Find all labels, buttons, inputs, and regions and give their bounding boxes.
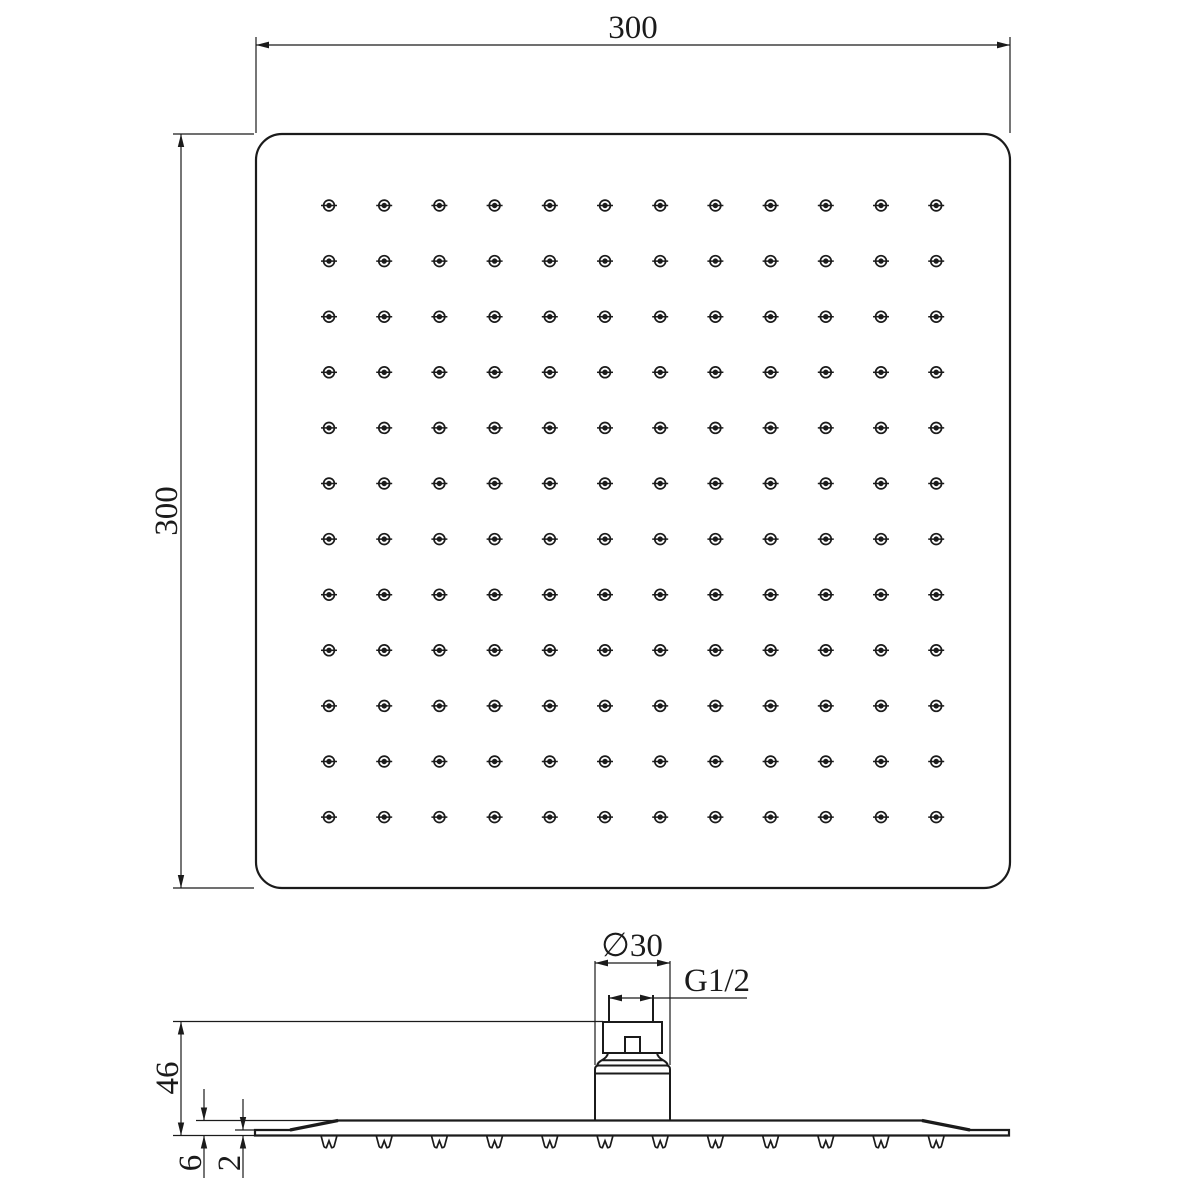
nozzle-hole (873, 256, 889, 267)
nozzle-center-dot (878, 425, 883, 430)
nozzle-hole (928, 701, 944, 712)
nozzle-hole (707, 256, 723, 267)
nozzle-center-dot (547, 258, 552, 263)
nozzle-hole (818, 645, 834, 656)
nozzle-center-dot (602, 203, 607, 208)
nozzle-hole (707, 812, 723, 823)
plate-thickness-label: 6 (173, 1155, 209, 1172)
nozzle-center-dot (878, 258, 883, 263)
nozzle-center-dot (492, 370, 497, 375)
nozzle-center-dot (437, 481, 442, 486)
nozzle-hole (487, 534, 503, 545)
nozzle-center-dot (547, 481, 552, 486)
nozzle-center-dot (492, 314, 497, 319)
arrowhead (178, 875, 184, 888)
nozzle-center-dot (713, 536, 718, 541)
nozzle-hole (487, 589, 503, 600)
nozzle-center-dot (713, 258, 718, 263)
nozzle-center-dot (878, 703, 883, 708)
nozzle-center-dot (878, 648, 883, 653)
nozzle-center-dot (658, 814, 663, 819)
nozzle-hole (707, 311, 723, 322)
nozzle-hole (321, 423, 337, 434)
nozzle-center-dot (658, 759, 663, 764)
flange-collar (595, 1066, 670, 1074)
nozzle-hole (707, 701, 723, 712)
nozzle-center-dot (934, 203, 939, 208)
nozzle-hole (707, 478, 723, 489)
plate-profile (255, 1121, 1009, 1136)
nozzle-center-dot (713, 481, 718, 486)
nozzle-center-dot (878, 314, 883, 319)
height-label: 46 (150, 1062, 186, 1095)
nozzle-hole (763, 478, 779, 489)
nozzle-hole (928, 200, 944, 211)
arrowhead (201, 1136, 207, 1149)
nozzle-tip (707, 1136, 723, 1148)
nozzle-hole (763, 812, 779, 823)
nozzle-center-dot (382, 814, 387, 819)
nozzle-hole (321, 812, 337, 823)
nozzle-center-dot (437, 814, 442, 819)
nozzle-center-dot (326, 703, 331, 708)
nozzle-center-dot (823, 703, 828, 708)
nozzle-center-dot (658, 425, 663, 430)
nozzle-hole (707, 367, 723, 378)
nozzle-center-dot (602, 258, 607, 263)
nozzle-hole (873, 200, 889, 211)
thread-dimension: G1/2 (609, 963, 750, 1001)
nozzle-center-dot (602, 370, 607, 375)
nozzle-tip (818, 1136, 834, 1148)
nozzle-center-dot (492, 759, 497, 764)
nozzle-hole (818, 534, 834, 545)
nozzle-hole (487, 311, 503, 322)
nozzle-tip (597, 1136, 613, 1148)
nozzle-hole (652, 367, 668, 378)
nozzle-hole (487, 200, 503, 211)
nozzle-center-dot (934, 481, 939, 486)
nozzle-center-dot (547, 203, 552, 208)
shower-face-outline (256, 134, 1010, 888)
nozzle-tip (376, 1136, 392, 1148)
nozzle-center-dot (492, 258, 497, 263)
nozzle-center-dot (658, 203, 663, 208)
nozzle-hole (652, 256, 668, 267)
nozzle-hole (873, 534, 889, 545)
trumpet-neck (597, 1053, 668, 1066)
nozzle-tip (542, 1136, 558, 1148)
nozzle-center-dot (658, 592, 663, 597)
nozzle-hole (487, 756, 503, 767)
nozzle-hole (376, 645, 392, 656)
arrowhead (178, 1022, 184, 1035)
nozzle-hole (763, 256, 779, 267)
nozzle-hole (818, 589, 834, 600)
nozzle-hole (542, 256, 558, 267)
nozzle-center-dot (713, 703, 718, 708)
nozzle-hole (818, 256, 834, 267)
nozzle-center-dot (658, 481, 663, 486)
nozzle-hole (928, 423, 944, 434)
nozzle-center-dot (823, 425, 828, 430)
nozzle-center-dot (768, 314, 773, 319)
nozzle-center-dot (326, 536, 331, 541)
arrowhead (256, 42, 269, 49)
nozzle-center-dot (437, 370, 442, 375)
nozzle-hole (431, 200, 447, 211)
nozzle-hole (597, 478, 613, 489)
nozzle-hole (763, 701, 779, 712)
nozzle-hole (376, 756, 392, 767)
nozzle-center-dot (492, 814, 497, 819)
nozzle-tip (487, 1136, 503, 1148)
nozzle-center-dot (768, 592, 773, 597)
edge-thickness-dimension: 2 (212, 1099, 292, 1178)
nozzle-hole (542, 478, 558, 489)
nozzle-center-dot (437, 425, 442, 430)
nozzle-center-dot (934, 648, 939, 653)
nozzle-center-dot (713, 203, 718, 208)
nozzle-hole (321, 589, 337, 600)
nozzle-hole (763, 200, 779, 211)
nozzle-hole (376, 812, 392, 823)
nozzle-hole (376, 701, 392, 712)
nozzle-center-dot (437, 759, 442, 764)
nozzle-hole (321, 756, 337, 767)
nozzle-hole (597, 423, 613, 434)
nozzle-hole (597, 256, 613, 267)
nozzle-center-dot (878, 481, 883, 486)
arrowhead (997, 42, 1010, 49)
nozzle-grid (321, 200, 944, 822)
nozzle-center-dot (713, 814, 718, 819)
nozzle-center-dot (602, 481, 607, 486)
nozzle-center-dot (878, 592, 883, 597)
nozzle-center-dot (602, 314, 607, 319)
nozzle-hole (542, 812, 558, 823)
nozzle-hole (597, 701, 613, 712)
nozzle-center-dot (934, 314, 939, 319)
nozzle-center-dot (768, 648, 773, 653)
nozzle-hole (928, 756, 944, 767)
nozzle-hole (376, 311, 392, 322)
side-nozzle-tips (321, 1136, 944, 1148)
nozzle-center-dot (823, 814, 828, 819)
nozzle-center-dot (547, 592, 552, 597)
nozzle-center-dot (768, 703, 773, 708)
nozzle-center-dot (547, 703, 552, 708)
nozzle-center-dot (382, 370, 387, 375)
nozzle-hole (818, 311, 834, 322)
nozzle-hole (487, 645, 503, 656)
nozzle-center-dot (437, 258, 442, 263)
nozzle-hole (818, 367, 834, 378)
nozzle-hole (376, 367, 392, 378)
nozzle-tip (652, 1136, 668, 1148)
nozzle-hole (873, 478, 889, 489)
nozzle-center-dot (713, 370, 718, 375)
nozzle-center-dot (602, 703, 607, 708)
nozzle-hole (763, 367, 779, 378)
nozzle-center-dot (382, 258, 387, 263)
nozzle-hole (376, 534, 392, 545)
height-dimension: 46 (150, 1022, 603, 1136)
nozzle-center-dot (878, 203, 883, 208)
arrowhead (178, 134, 184, 147)
nozzle-hole (652, 756, 668, 767)
arrowhead (201, 1108, 207, 1121)
nozzle-hole (763, 589, 779, 600)
arrowhead (240, 1117, 246, 1130)
nozzle-hole (928, 367, 944, 378)
nozzle-center-dot (713, 314, 718, 319)
nozzle-center-dot (768, 759, 773, 764)
drawing-canvas: 300 300 (0, 0, 1200, 1200)
nozzle-center-dot (437, 592, 442, 597)
nozzle-center-dot (382, 592, 387, 597)
nozzle-hole (652, 589, 668, 600)
nozzle-hole (818, 756, 834, 767)
nozzle-center-dot (823, 370, 828, 375)
nozzle-hole (597, 534, 613, 545)
nozzle-hole (431, 256, 447, 267)
nozzle-hole (652, 311, 668, 322)
nozzle-center-dot (713, 592, 718, 597)
nozzle-center-dot (878, 759, 883, 764)
nozzle-center-dot (382, 481, 387, 486)
nozzle-center-dot (934, 592, 939, 597)
nozzle-hole (431, 756, 447, 767)
nozzle-hole (818, 423, 834, 434)
nozzle-hole (818, 812, 834, 823)
nozzle-tip (928, 1136, 944, 1148)
nozzle-hole (873, 311, 889, 322)
nozzle-center-dot (658, 536, 663, 541)
nozzle-center-dot (437, 203, 442, 208)
nozzle-hole (376, 589, 392, 600)
nozzle-hole (542, 645, 558, 656)
nozzle-hole (707, 756, 723, 767)
nozzle-center-dot (382, 536, 387, 541)
nozzle-center-dot (547, 648, 552, 653)
nozzle-center-dot (602, 592, 607, 597)
nozzle-center-dot (492, 425, 497, 430)
nozzle-hole (321, 367, 337, 378)
nozzle-hole (707, 645, 723, 656)
nozzle-center-dot (713, 648, 718, 653)
nozzle-tip (431, 1136, 447, 1148)
nozzle-hole (431, 534, 447, 545)
nozzle-center-dot (437, 648, 442, 653)
nozzle-center-dot (658, 314, 663, 319)
arrowhead (240, 1136, 246, 1149)
nozzle-hole (431, 645, 447, 656)
nozzle-hole (763, 423, 779, 434)
nozzle-center-dot (768, 370, 773, 375)
nozzle-center-dot (823, 592, 828, 597)
nozzle-hole (321, 256, 337, 267)
nozzle-center-dot (382, 759, 387, 764)
nozzle-hole (431, 701, 447, 712)
nozzle-center-dot (768, 814, 773, 819)
nozzle-hole (431, 589, 447, 600)
nozzle-hole (431, 478, 447, 489)
nozzle-center-dot (547, 759, 552, 764)
nozzle-center-dot (878, 370, 883, 375)
nozzle-hole (597, 367, 613, 378)
thread-label: G1/2 (684, 963, 750, 999)
nozzle-hole (597, 756, 613, 767)
left-height-dimension: 300 (149, 134, 254, 888)
nozzle-hole (652, 423, 668, 434)
top-view (256, 134, 1010, 888)
nozzle-hole (487, 812, 503, 823)
nozzle-hole (873, 423, 889, 434)
nozzle-center-dot (934, 536, 939, 541)
nozzle-center-dot (602, 759, 607, 764)
nozzle-hole (542, 367, 558, 378)
nozzle-hole (707, 589, 723, 600)
nozzle-center-dot (326, 481, 331, 486)
nozzle-center-dot (768, 203, 773, 208)
nozzle-center-dot (823, 759, 828, 764)
nozzle-hole (542, 756, 558, 767)
nozzle-center-dot (492, 536, 497, 541)
nozzle-center-dot (823, 536, 828, 541)
nozzle-hole (487, 256, 503, 267)
nozzle-center-dot (658, 703, 663, 708)
nozzle-hole (873, 756, 889, 767)
nozzle-center-dot (326, 648, 331, 653)
nozzle-center-dot (878, 814, 883, 819)
nozzle-center-dot (547, 814, 552, 819)
nozzle-center-dot (382, 314, 387, 319)
nozzle-tip (873, 1136, 889, 1148)
nozzle-center-dot (326, 425, 331, 430)
nozzle-hole (487, 367, 503, 378)
nozzle-hole (873, 589, 889, 600)
nozzle-center-dot (768, 481, 773, 486)
nozzle-hole (928, 589, 944, 600)
nozzle-hole (652, 812, 668, 823)
nozzle-hole (928, 812, 944, 823)
nozzle-hole (597, 645, 613, 656)
nozzle-hole (928, 534, 944, 545)
nozzle-hole (542, 200, 558, 211)
nozzle-center-dot (934, 814, 939, 819)
nozzle-center-dot (492, 481, 497, 486)
nozzle-hole (928, 311, 944, 322)
nozzle-hole (431, 812, 447, 823)
nozzle-hole (873, 812, 889, 823)
nozzle-center-dot (326, 203, 331, 208)
nozzle-center-dot (492, 592, 497, 597)
nozzle-center-dot (547, 314, 552, 319)
nozzle-center-dot (547, 370, 552, 375)
nozzle-center-dot (382, 703, 387, 708)
nozzle-hole (652, 701, 668, 712)
nozzle-hole (707, 534, 723, 545)
nozzle-center-dot (934, 370, 939, 375)
nozzle-center-dot (768, 536, 773, 541)
nozzle-center-dot (602, 425, 607, 430)
nozzle-center-dot (823, 203, 828, 208)
nozzle-center-dot (934, 759, 939, 764)
nozzle-hole (376, 256, 392, 267)
nozzle-hole (431, 423, 447, 434)
nozzle-hole (928, 478, 944, 489)
nozzle-center-dot (326, 370, 331, 375)
nozzle-center-dot (823, 648, 828, 653)
nozzle-hole (321, 645, 337, 656)
left-height-label: 300 (149, 486, 185, 536)
nozzle-hole (818, 478, 834, 489)
nozzle-center-dot (326, 759, 331, 764)
nozzle-hole (542, 534, 558, 545)
nozzle-center-dot (878, 536, 883, 541)
nozzle-hole (873, 367, 889, 378)
nozzle-center-dot (768, 425, 773, 430)
nozzle-hole (873, 645, 889, 656)
nozzle-center-dot (823, 314, 828, 319)
nozzle-center-dot (602, 536, 607, 541)
nozzle-hole (321, 534, 337, 545)
nozzle-center-dot (326, 258, 331, 263)
nozzle-center-dot (658, 648, 663, 653)
nozzle-hole (818, 701, 834, 712)
nozzle-hole (818, 200, 834, 211)
diameter-dimension: ∅30 (595, 928, 670, 1065)
nozzle-hole (376, 478, 392, 489)
plate-bevel-right (922, 1121, 970, 1131)
nozzle-hole (597, 589, 613, 600)
side-view (255, 995, 1009, 1148)
nozzle-center-dot (437, 536, 442, 541)
nozzle-center-dot (713, 425, 718, 430)
nozzle-hole (321, 478, 337, 489)
nozzle-hole (321, 200, 337, 211)
nozzle-hole (707, 200, 723, 211)
nozzle-hole (763, 756, 779, 767)
nozzle-hole (431, 367, 447, 378)
nozzle-center-dot (382, 648, 387, 653)
nozzle-hole (487, 423, 503, 434)
nozzle-center-dot (823, 481, 828, 486)
nozzle-hole (597, 812, 613, 823)
nozzle-center-dot (658, 370, 663, 375)
nozzle-hole (597, 200, 613, 211)
nozzle-center-dot (326, 814, 331, 819)
plate-bevel-left (290, 1121, 338, 1131)
edge-thickness-label: 2 (212, 1155, 248, 1172)
nozzle-center-dot (382, 425, 387, 430)
nozzle-center-dot (547, 536, 552, 541)
nozzle-center-dot (602, 814, 607, 819)
technical-drawing: 300 300 (0, 0, 1200, 1200)
nozzle-hole (652, 478, 668, 489)
nozzle-center-dot (492, 203, 497, 208)
nozzle-center-dot (934, 258, 939, 263)
nozzle-center-dot (437, 314, 442, 319)
nozzle-hole (652, 200, 668, 211)
nozzle-tip (763, 1136, 779, 1148)
nozzle-hole (873, 701, 889, 712)
nozzle-center-dot (437, 703, 442, 708)
nozzle-center-dot (326, 592, 331, 597)
nozzle-hole (321, 701, 337, 712)
arrowhead (178, 1123, 184, 1136)
